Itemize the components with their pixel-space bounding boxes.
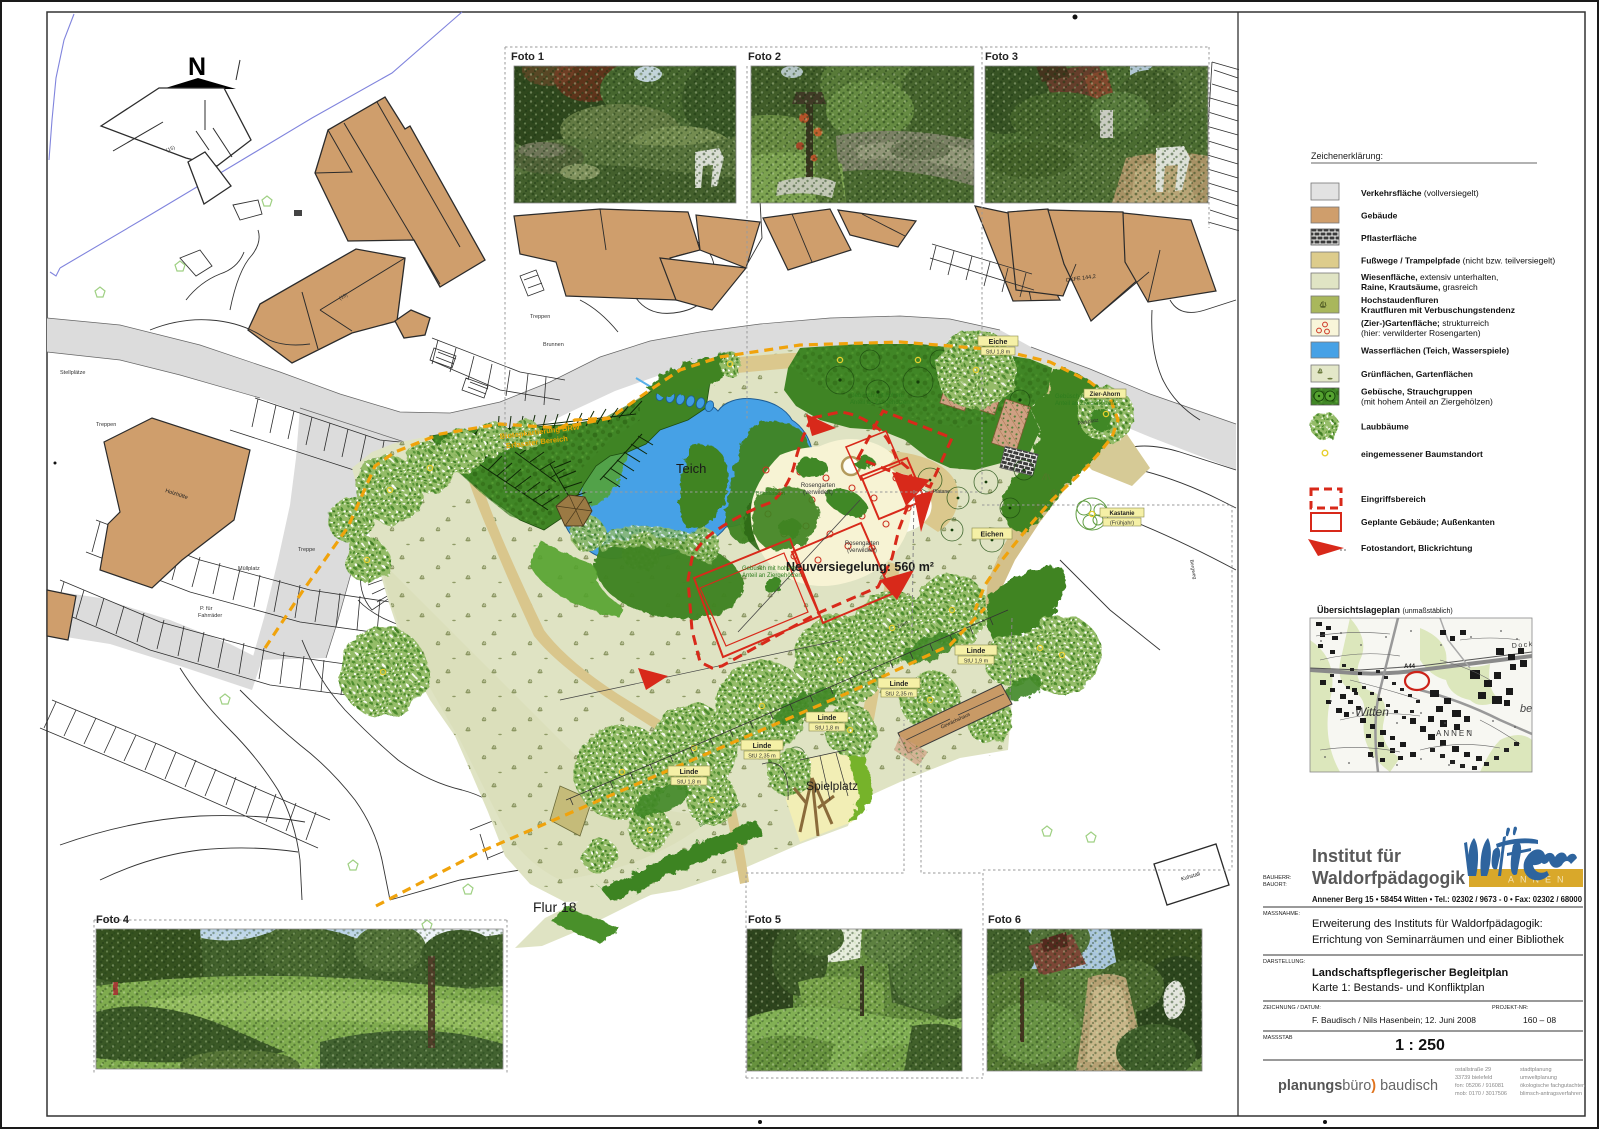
svg-text:160 – 08: 160 – 08: [1523, 1015, 1556, 1025]
svg-text:umweltplanung: umweltplanung: [1520, 1075, 1557, 1081]
svg-text:eingemessener Baumstandort: eingemessener Baumstandort: [1361, 449, 1483, 459]
svg-text:Eichen: Eichen: [981, 532, 1004, 539]
svg-text:Stellplätze: Stellplätze: [60, 370, 85, 376]
svg-text:BAUHERR:: BAUHERR:: [1263, 875, 1292, 881]
svg-text:StU 2,35 m: StU 2,35 m: [885, 692, 913, 698]
svg-text:Neuversiegelung: 560 m²: Neuversiegelung: 560 m²: [786, 560, 934, 574]
svg-text:Spielplatz: Spielplatz: [806, 779, 858, 793]
svg-text:Annener Berg 15 • 58454 Wi: Annener Berg 15 • 58454 Witten • Tel.: 0…: [1312, 895, 1583, 904]
svg-text:Gebüsche, Strauchgruppen: Gebüsche, Strauchgruppen: [1361, 387, 1472, 397]
svg-text:StU 1,9 m: StU 1,9 m: [964, 659, 989, 665]
svg-text:fon: 05206 / 916081: fon: 05206 / 916081: [1455, 1083, 1504, 1089]
svg-text:Gebäude: Gebäude: [1361, 211, 1398, 221]
svg-text:Pflasterfläche: Pflasterfläche: [1361, 233, 1417, 243]
svg-text:(mit hohem Anteil an Ziergehöl: (mit hohem Anteil an Ziergehölzen): [1361, 397, 1493, 407]
svg-text:Witten: Witten: [1355, 705, 1389, 719]
svg-text:Erweiterung des Instituts für: Erweiterung des Instituts für Waldorfpäd…: [1312, 918, 1543, 930]
svg-text:planungsbüro) baudisch: planungsbüro) baudisch: [1278, 1077, 1438, 1094]
svg-text:Laubbäume: Laubbäume: [1361, 422, 1409, 432]
svg-text:Anteil an Ziergehölzen: Anteil an Ziergehölzen: [1055, 401, 1115, 407]
svg-text:(Frühjahr): (Frühjahr): [1110, 521, 1134, 527]
svg-text:N: N: [188, 53, 206, 81]
svg-text:Eingriffsbereich: Eingriffsbereich: [1361, 494, 1426, 504]
svg-text:mob: 0170 / 3017506: mob: 0170 / 3017506: [1455, 1091, 1507, 1097]
svg-text:Foto 2: Foto 2: [748, 51, 781, 63]
svg-text:Treppe: Treppe: [298, 547, 315, 553]
svg-text:Eiche: Eiche: [989, 339, 1008, 346]
svg-text:Anteil an Ziergehölzen: Anteil an Ziergehölzen: [742, 573, 802, 579]
svg-text:blimsch-antragsverfahren: blimsch-antragsverfahren: [1520, 1091, 1582, 1097]
svg-text:33739 bielefeld: 33739 bielefeld: [1455, 1075, 1492, 1081]
svg-text:Foto 3: Foto 3: [985, 51, 1018, 63]
svg-text:Fußwege / Trampelpfade (nicht: Fußwege / Trampelpfade (nicht bzw. teilv…: [1361, 256, 1555, 266]
svg-text:Gebüsch mit hohem: Gebüsch mit hohem: [742, 566, 796, 572]
svg-text:F. Baudisch / Nils Hasenbein;: F. Baudisch / Nils Hasenbein; 12. Juni 2…: [1312, 1015, 1476, 1025]
svg-text:A44: A44: [1404, 664, 1416, 670]
svg-text:Gebüsch mit hohem: Gebüsch mit hohem: [850, 393, 904, 399]
svg-text:Treppen: Treppen: [96, 422, 116, 428]
svg-text:Foto 6: Foto 6: [988, 914, 1021, 926]
svg-text:be: be: [1520, 703, 1532, 715]
svg-text:Landschaftspflegerischer Begle: Landschaftspflegerischer Begleitplan: [1312, 967, 1508, 979]
svg-text:Müllplatz: Müllplatz: [238, 566, 260, 572]
svg-text:Krautfluren mit Verbuschungste: Krautfluren mit Verbuschungstendenz: [1361, 305, 1515, 315]
svg-text:Verkehrsfläche (vollversiegelt: Verkehrsfläche (vollversiegelt): [1361, 188, 1479, 198]
svg-text:ZEICHNUNG / DATUM:: ZEICHNUNG / DATUM:: [1263, 1005, 1321, 1011]
svg-text:Zier-Ahorn: Zier-Ahorn: [1090, 392, 1121, 398]
svg-text:PROJEKT-NR:: PROJEKT-NR:: [1492, 1005, 1529, 1011]
svg-text:Zeichenerklärung:: Zeichenerklärung:: [1311, 151, 1383, 161]
svg-text:Geplante Gebäude; Außenkanten: Geplante Gebäude; Außenkanten: [1361, 517, 1495, 527]
svg-text:(hier: verwilderter Rosengart: (hier: verwilderter Rosengarten): [1361, 328, 1481, 338]
svg-text:StU 1,8 m: StU 1,8 m: [815, 726, 840, 732]
svg-text:StU 2,35 m: StU 2,35 m: [748, 754, 776, 760]
svg-text:Rosengarten: Rosengarten: [845, 541, 879, 547]
svg-text:Hochstaudenfluren: Hochstaudenfluren: [1361, 295, 1438, 305]
svg-text:Linde: Linde: [890, 681, 909, 688]
svg-text:Linde: Linde: [818, 715, 837, 722]
svg-text:Errichtung von Seminarräumen u: Errichtung von Seminarräumen und einer B…: [1312, 934, 1564, 946]
svg-text:Foto 5: Foto 5: [748, 914, 781, 926]
svg-text:BAUORT:: BAUORT:: [1263, 882, 1287, 888]
svg-text:MASSNAHME:: MASSNAHME:: [1263, 911, 1300, 917]
svg-text:Institut für: Institut für: [1312, 846, 1401, 866]
svg-text:Treppen: Treppen: [530, 314, 550, 320]
svg-text:Waldorfpädagogik: Waldorfpädagogik: [1312, 868, 1466, 888]
svg-text:Rosengarten: Rosengarten: [801, 483, 835, 489]
svg-text:Linde: Linde: [680, 769, 699, 776]
svg-text:ökologische fachgutachten: ökologische fachgutachten: [1520, 1083, 1585, 1089]
svg-text:Flur 18: Flur 18: [533, 899, 577, 915]
svg-text:stadtplanung: stadtplanung: [1520, 1067, 1552, 1073]
svg-text:Linde: Linde: [753, 743, 772, 750]
svg-text:ostallstraße 29: ostallstraße 29: [1455, 1067, 1491, 1073]
svg-text:Grünflächen, Gartenflächen: Grünflächen, Gartenflächen: [1361, 369, 1473, 379]
svg-text:Kastanie: Kastanie: [1109, 511, 1135, 517]
svg-text:MASSSTAB: MASSSTAB: [1263, 1035, 1293, 1041]
svg-text:1 : 250: 1 : 250: [1395, 1037, 1445, 1054]
svg-text:P. für: P. für: [200, 606, 213, 612]
svg-text:Foto 1: Foto 1: [511, 51, 544, 63]
svg-text:Buchsbaum: Buchsbaum: [756, 491, 785, 497]
svg-text:Brunnen: Brunnen: [543, 342, 564, 348]
svg-text:(verwildert): (verwildert): [803, 490, 833, 496]
svg-text:(verwildert): (verwildert): [847, 548, 877, 554]
svg-text:StU 1,8 m: StU 1,8 m: [677, 780, 702, 786]
svg-text:DARSTELLUNG:: DARSTELLUNG:: [1263, 959, 1306, 965]
svg-text:Raine, Krautsäume, grasreich: Raine, Krautsäume, grasreich: [1361, 282, 1478, 292]
svg-text:Teich: Teich: [676, 461, 706, 476]
svg-text:Foto 4: Foto 4: [96, 914, 130, 926]
svg-text:Fahrräder: Fahrräder: [198, 613, 222, 619]
svg-text:Wiesenfläche, extensiv unterha: Wiesenfläche, extensiv unterhalten,: [1361, 272, 1498, 282]
svg-text:Linde: Linde: [967, 648, 986, 655]
svg-text:StU 1,8 m: StU 1,8 m: [986, 350, 1011, 356]
svg-text:Anteil an Ziergehölzen: Anteil an Ziergehölzen: [850, 400, 910, 406]
svg-text:Fotostandort, Blickrichtung: Fotostandort, Blickrichtung: [1361, 543, 1472, 553]
svg-text:(Zier-)Gartenfläche; strukturr: (Zier-)Gartenfläche; strukturreich: [1361, 318, 1489, 328]
svg-text:Wasserflächen (Teich, Wassersp: Wasserflächen (Teich, Wasserspiele): [1361, 346, 1509, 356]
svg-text:Karte 1: Bestands- und Konflik: Karte 1: Bestands- und Konfliktplan: [1312, 982, 1484, 994]
svg-text:Platane: Platane: [933, 489, 950, 495]
